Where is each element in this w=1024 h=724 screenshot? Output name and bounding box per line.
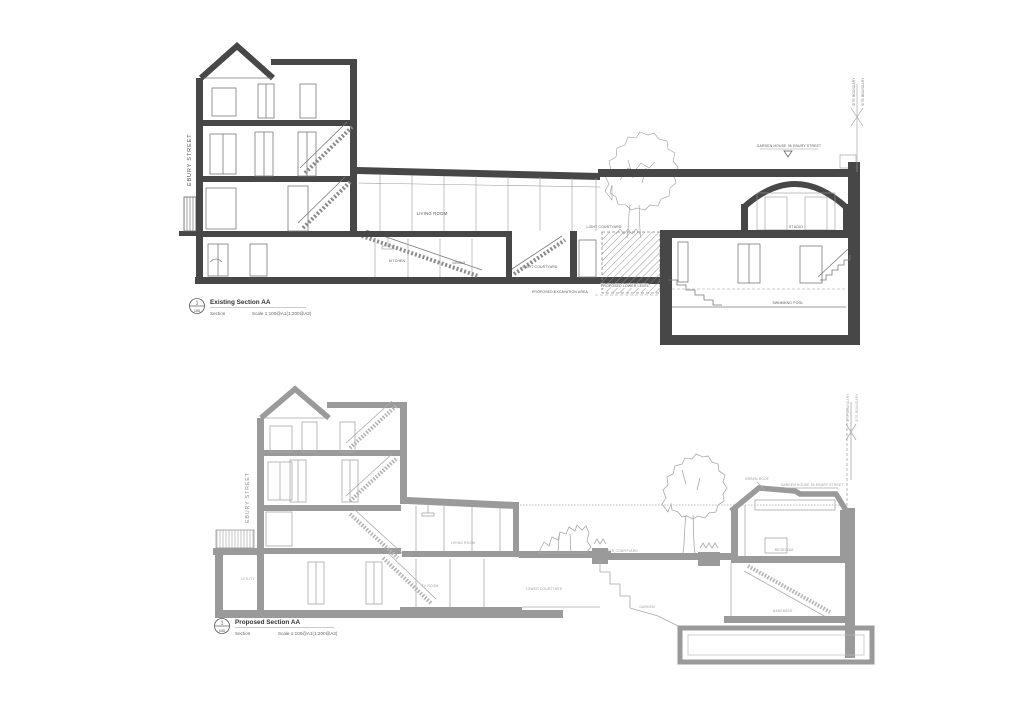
proposed-boundary-marker: SITE BOUNDARY SITE BOUNDARY	[846, 393, 859, 480]
label-proposed-boundary-a: SITE BOUNDARY	[846, 393, 850, 422]
proposed-ref-number: 1	[221, 621, 224, 627]
existing-title-block: 1 100 Existing Section AA Section Scale …	[190, 299, 312, 317]
label-existing-studio: STUDIO	[789, 225, 803, 229]
existing-roof-gable	[201, 46, 273, 78]
label-existing-living-room: LIVING ROOM	[417, 211, 448, 216]
label-proposed-basement: BASEMENT	[773, 609, 793, 613]
existing-rear-extension: LIVING ROOM KITCHEN DINING	[357, 167, 600, 277]
label-lower-courtyard: LOWER COURTYARD	[526, 587, 563, 591]
proposed-title: Proposed Section AA	[235, 619, 300, 626]
proposed-section-drawing: EBURY STREET	[213, 389, 872, 662]
existing-garden-house: STUDIO GARDEN HOUSE 36 EBURY STREET	[598, 144, 856, 232]
label-swimming-pool: SWIMMING POOL	[772, 301, 803, 305]
label-existing-garden-house: GARDEN HOUSE 36 EBURY STREET	[757, 144, 822, 148]
existing-section-drawing: EBURY STREET	[179, 46, 865, 345]
label-proposed-living-room: LIVING ROOM	[451, 541, 475, 545]
label-proposed-utility: UTILITY	[241, 577, 255, 581]
label-existing-light-courtyard: LIGHT COURTYARD	[522, 265, 557, 269]
proposed-street-label: EBURY STREET	[245, 472, 251, 523]
sections-canvas: EBURY STREET	[0, 0, 1024, 724]
proposed-courtyards: UPPER COURTYARD LOWER COURTYARD GARDEN	[519, 505, 845, 626]
drawing-sheet: EBURY STREET	[0, 0, 1024, 724]
label-proposed-boundary-b: SITE BOUNDARY	[855, 393, 859, 422]
proposed-ref-scale: 100	[219, 629, 225, 633]
proposed-roof-gable	[261, 389, 329, 418]
proposed-house-windows	[266, 422, 382, 604]
existing-type-label: Section	[210, 311, 226, 316]
label-proposed-tv-room: TV ROOM	[422, 584, 439, 588]
existing-tree	[605, 132, 678, 238]
proposed-rear-extension: LIVING ROOM TV ROOM	[400, 497, 522, 615]
proposed-street-elements: EBURY STREET	[213, 472, 264, 612]
label-boundary-a: SITE BOUNDARY	[852, 77, 856, 106]
existing-pool-room: SWIMMING POOL	[660, 162, 860, 345]
existing-ref-scale: 100	[194, 309, 200, 313]
label-proposed-garden-house: GARDEN HOUSE 36 EBURY STREET	[780, 483, 843, 487]
label-excavation-area: PROPOSED EXCAVATION AREA	[532, 290, 589, 294]
existing-house	[195, 46, 660, 284]
label-green-roof: GREEN ROOF	[745, 477, 769, 481]
existing-excavation-area: PROPOSED EXCAVATION AREA PROPOSED LOWER …	[532, 232, 665, 295]
label-existing-dining: DINING	[452, 261, 465, 265]
proposed-type-label: Section	[235, 631, 251, 636]
label-existing-rear-courtyard: LIGHT COURTYARD	[586, 225, 621, 229]
label-upper-courtyard: UPPER COURTYARD	[602, 549, 638, 553]
label-lower-level: PROPOSED LOWER LEVEL	[601, 284, 649, 288]
existing-ref-number: 1	[196, 301, 199, 307]
existing-street-elements: EBURY STREET	[179, 134, 196, 236]
proposed-scale-label: Scale 1:100@A1(1:200@A3)	[278, 631, 338, 636]
existing-stairs	[298, 122, 482, 276]
existing-street-label: EBURY STREET	[187, 134, 193, 186]
proposed-title-block: 1 100 Proposed Section AA Section Scale …	[215, 619, 338, 637]
proposed-garden-house: BEDROOM GREEN ROOF GARDEN HOUSE 36 EBURY…	[731, 408, 847, 563]
proposed-tree	[662, 454, 727, 553]
existing-boundary-marker: SITE BOUNDARY SITE BOUNDARY	[851, 77, 865, 172]
label-boundary-b: SITE BOUNDARY	[861, 77, 865, 106]
existing-scale-label: Scale 1:100@A1(1:200@A3)	[252, 311, 312, 316]
existing-title: Existing Section AA	[210, 299, 271, 306]
label-proposed-garden: GARDEN	[639, 605, 655, 609]
label-proposed-bedroom: BEDROOM	[775, 548, 793, 552]
label-existing-kitchen: KITCHEN	[389, 259, 406, 263]
